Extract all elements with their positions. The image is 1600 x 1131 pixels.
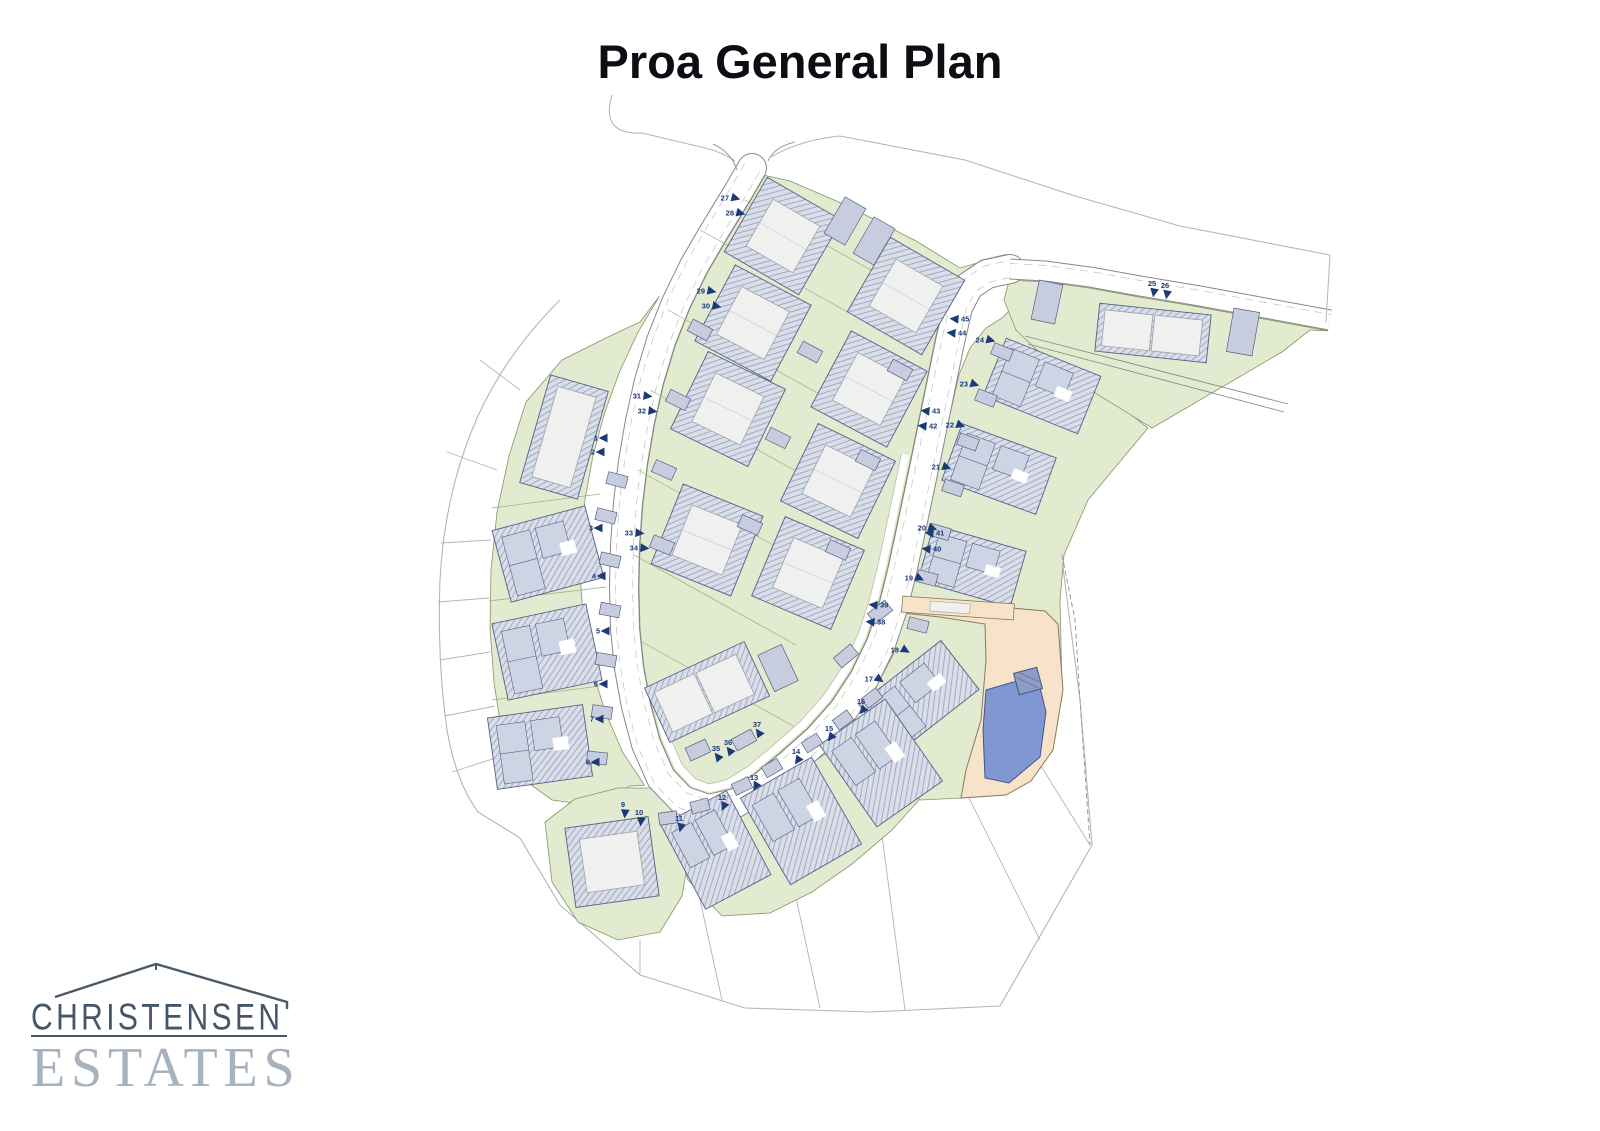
svg-text:12: 12 xyxy=(718,793,726,802)
svg-text:26: 26 xyxy=(1161,281,1169,290)
svg-text:16: 16 xyxy=(857,697,865,706)
svg-text:14: 14 xyxy=(792,747,801,756)
svg-text:22: 22 xyxy=(946,421,954,430)
svg-text:38: 38 xyxy=(877,618,885,627)
svg-text:24: 24 xyxy=(976,336,985,345)
svg-text:35: 35 xyxy=(712,744,720,753)
svg-text:40: 40 xyxy=(933,545,941,554)
svg-text:29: 29 xyxy=(697,287,705,296)
svg-text:1: 1 xyxy=(594,434,598,443)
svg-text:23: 23 xyxy=(960,380,968,389)
svg-text:20: 20 xyxy=(918,524,926,533)
svg-text:41: 41 xyxy=(936,529,944,538)
svg-text:39: 39 xyxy=(880,601,888,610)
svg-text:27: 27 xyxy=(721,194,729,203)
svg-text:19: 19 xyxy=(905,574,913,583)
svg-text:45: 45 xyxy=(961,315,969,324)
svg-text:44: 44 xyxy=(958,329,967,338)
svg-text:36: 36 xyxy=(724,738,732,747)
svg-text:37: 37 xyxy=(753,720,761,729)
svg-text:31: 31 xyxy=(633,392,641,401)
svg-text:9: 9 xyxy=(621,800,625,809)
svg-text:28: 28 xyxy=(726,209,734,218)
svg-text:33: 33 xyxy=(625,529,633,538)
svg-text:5: 5 xyxy=(596,627,600,636)
svg-text:17: 17 xyxy=(865,675,873,684)
svg-text:2: 2 xyxy=(591,448,595,457)
svg-text:8: 8 xyxy=(586,758,590,767)
svg-text:25: 25 xyxy=(1148,279,1156,288)
svg-text:10: 10 xyxy=(635,808,643,817)
svg-text:7: 7 xyxy=(590,715,594,724)
svg-text:30: 30 xyxy=(702,302,710,311)
svg-text:32: 32 xyxy=(638,407,646,416)
svg-text:21: 21 xyxy=(932,463,940,472)
svg-text:18: 18 xyxy=(891,646,899,655)
svg-text:34: 34 xyxy=(630,544,639,553)
svg-text:43: 43 xyxy=(932,407,940,416)
svg-text:42: 42 xyxy=(929,422,937,431)
svg-text:6: 6 xyxy=(594,680,598,689)
svg-text:3: 3 xyxy=(589,524,593,533)
svg-text:15: 15 xyxy=(825,724,833,733)
svg-text:13: 13 xyxy=(750,773,758,782)
svg-text:11: 11 xyxy=(675,814,683,823)
